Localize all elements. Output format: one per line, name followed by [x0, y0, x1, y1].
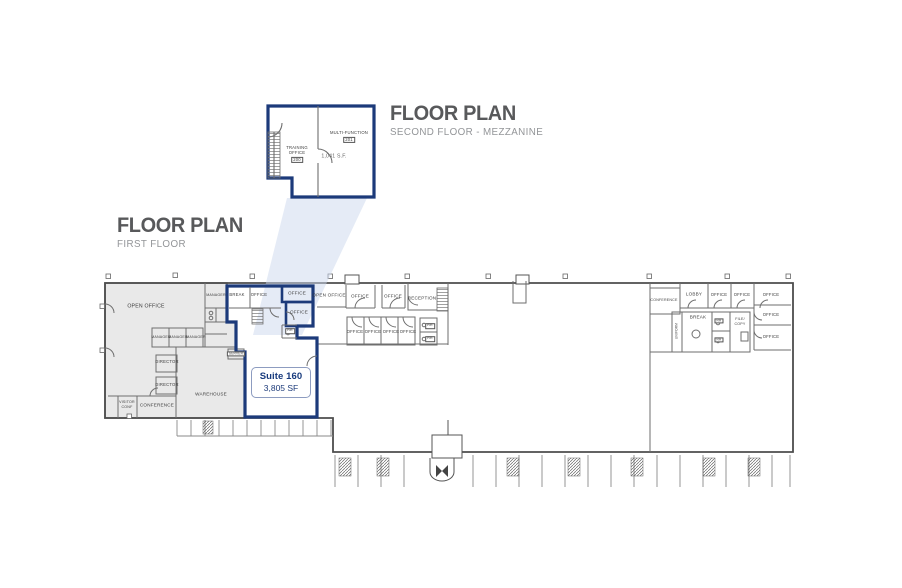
dock-stalls — [177, 420, 790, 487]
room-label-right-office-1: OFFICE — [711, 293, 728, 297]
second-floor-subheading: SECOND FLOOR - MEZZANINE — [390, 127, 543, 138]
room-label-visitor-conf-2: CONF — [122, 406, 133, 410]
first-floor-subheading: FIRST FLOOR — [117, 239, 247, 250]
floor-plan-canvas: FLOOR PLAN SECOND FLOOR - MEZZANINE FLOO… — [0, 0, 902, 588]
existing-space-fill — [105, 283, 245, 418]
room-label-conference-west: CONFERENCE — [140, 404, 174, 409]
room-label-uniform: UNIFORM — [675, 323, 678, 339]
room-label-mid-office-1: OFFICE — [351, 295, 369, 300]
suite-160-tag: Suite 160 3,805 SF — [251, 367, 311, 398]
first-floor-heading: FLOOR PLAN — [117, 214, 243, 238]
middle-section-walls — [317, 281, 650, 452]
room-number-200: 200 — [291, 157, 303, 163]
room-label-suite-office-2: OFFICE — [288, 292, 306, 297]
room-label-lobby: LOBBY — [686, 293, 702, 298]
room-label-conference-east: CONFERENCE — [650, 299, 677, 303]
room-label-open-office-west: OPEN OFFICE — [127, 304, 164, 309]
room-label-right-office-4: OFFICE — [763, 313, 780, 317]
ramp-bay — [430, 420, 462, 481]
suite-area: 3,805 SF — [252, 383, 310, 393]
room-number-201: 201 — [343, 137, 355, 143]
room-label-mid-office-6: OFFICE — [400, 330, 417, 334]
room-label-manager-3: MANAGER — [186, 336, 206, 340]
room-label-warehouse: WAREHOUSE — [195, 393, 227, 398]
first-floor-plan — [100, 273, 793, 487]
room-label-mid-rr-1: RR — [425, 323, 435, 329]
bowtie-symbol — [436, 465, 448, 477]
room-label-right-break: BREAK — [690, 316, 707, 321]
mezzanine-projection-beam — [253, 198, 367, 335]
suite-name: Suite 160 — [252, 371, 310, 382]
room-label-mid-office-3: OFFICE — [347, 330, 364, 334]
room-label-mid-office-4: OFFICE — [365, 330, 382, 334]
room-label-open-office-mid: OPEN OFFICE — [312, 294, 345, 299]
second-floor-heading: FLOOR PLAN — [390, 102, 538, 126]
room-label-suite-office-3: OFFICE — [290, 311, 308, 316]
dock-levelers — [203, 421, 760, 476]
room-label-suite-break: BREAK — [229, 293, 244, 297]
reception-stair — [437, 288, 448, 311]
room-label-mid-office-5: OFFICE — [383, 330, 400, 334]
room-label-suite-office-1: OFFICE — [251, 293, 268, 297]
room-label-right-rr-2: RR — [714, 337, 723, 342]
room-label-right-office-2: OFFICE — [734, 293, 751, 297]
room-label-reception: RECEPTION — [408, 297, 437, 302]
room-label-director-1: DIRECTOR — [155, 360, 178, 364]
room-label-mid-office-2: OFFICE — [384, 295, 402, 300]
second-floor-title: FLOOR PLAN SECOND FLOOR - MEZZANINE — [390, 102, 546, 138]
room-label-multifunction: MULTI-FUNCTION — [330, 131, 368, 135]
room-label-filecopy-2: COPY — [735, 323, 746, 327]
room-label-mid-rr-2: RR — [425, 336, 435, 342]
mezzanine-plan — [268, 106, 374, 197]
room-label-manager-4: MANAGER — [206, 294, 226, 298]
room-label-suite-rr: RR — [285, 328, 295, 334]
mezzanine-area-note: 1,041 S.F. — [321, 154, 346, 159]
room-label-right-office-3: OFFICE — [763, 293, 780, 297]
first-floor-title: FLOOR PLAN FIRST FLOOR — [117, 214, 250, 250]
room-label-manager-2: MANAGER — [168, 336, 188, 340]
room-label-training-2: OFFICE — [289, 151, 306, 155]
room-label-director-2: DIRECTOR — [155, 383, 178, 387]
room-label-right-rr-1: RR — [714, 318, 723, 323]
room-label-server: SERVER — [227, 351, 245, 356]
room-label-right-office-5: OFFICE — [763, 335, 780, 339]
